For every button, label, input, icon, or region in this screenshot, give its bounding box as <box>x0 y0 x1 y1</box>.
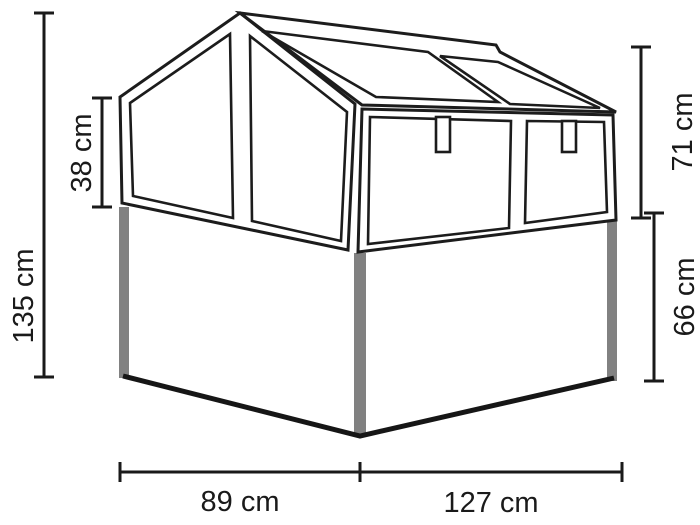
base-right-leg <box>607 221 617 381</box>
dimension-line-depth-width <box>120 462 622 482</box>
diagram-canvas: 135 cm 38 cm 71 cm 66 cm 89 cm 127 cm <box>0 0 700 525</box>
greenhouse-dimension-diagram: 135 cm 38 cm 71 cm 66 cm 89 cm 127 cm <box>0 0 700 525</box>
base-front-leg <box>354 253 366 437</box>
front-left-panel-handle <box>436 117 450 152</box>
dimension-label-depth: 89 cm <box>201 486 280 518</box>
glass-top-section <box>120 13 616 252</box>
dimension-label-total-height: 135 cm <box>8 248 40 343</box>
base-bottom-edge <box>123 376 614 436</box>
dimension-line-base-height <box>644 212 664 382</box>
dimension-label-base-height: 66 cm <box>669 258 700 337</box>
base-left-leg <box>119 207 129 378</box>
dimension-line-glass-top-height <box>631 46 651 219</box>
dimension-label-glass-top-height: 71 cm <box>667 93 699 172</box>
front-right-panel-handle <box>562 121 576 152</box>
dimension-label-gable-edge: 38 cm <box>66 114 98 193</box>
dimension-label-width: 127 cm <box>443 487 538 519</box>
